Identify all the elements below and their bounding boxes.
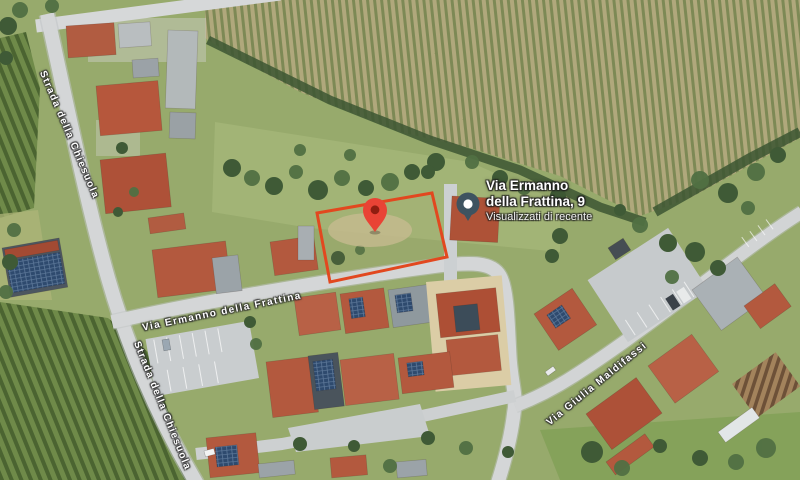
place-title-line2: della Frattina, 9 bbox=[486, 194, 592, 210]
satellite-map-view[interactable]: Strada della Chiesuola Strada della Chie… bbox=[0, 0, 800, 480]
satellite-imagery[interactable] bbox=[0, 0, 800, 480]
place-title-line1: Via Ermanno bbox=[486, 178, 592, 194]
recent-place-label[interactable]: Via Ermanno della Frattina, 9 Visualizza… bbox=[452, 178, 632, 234]
place-subtitle: Visualizzati di recente bbox=[486, 211, 592, 223]
recent-place-pin-icon[interactable] bbox=[454, 192, 482, 224]
map-marker-icon[interactable] bbox=[360, 195, 390, 235]
